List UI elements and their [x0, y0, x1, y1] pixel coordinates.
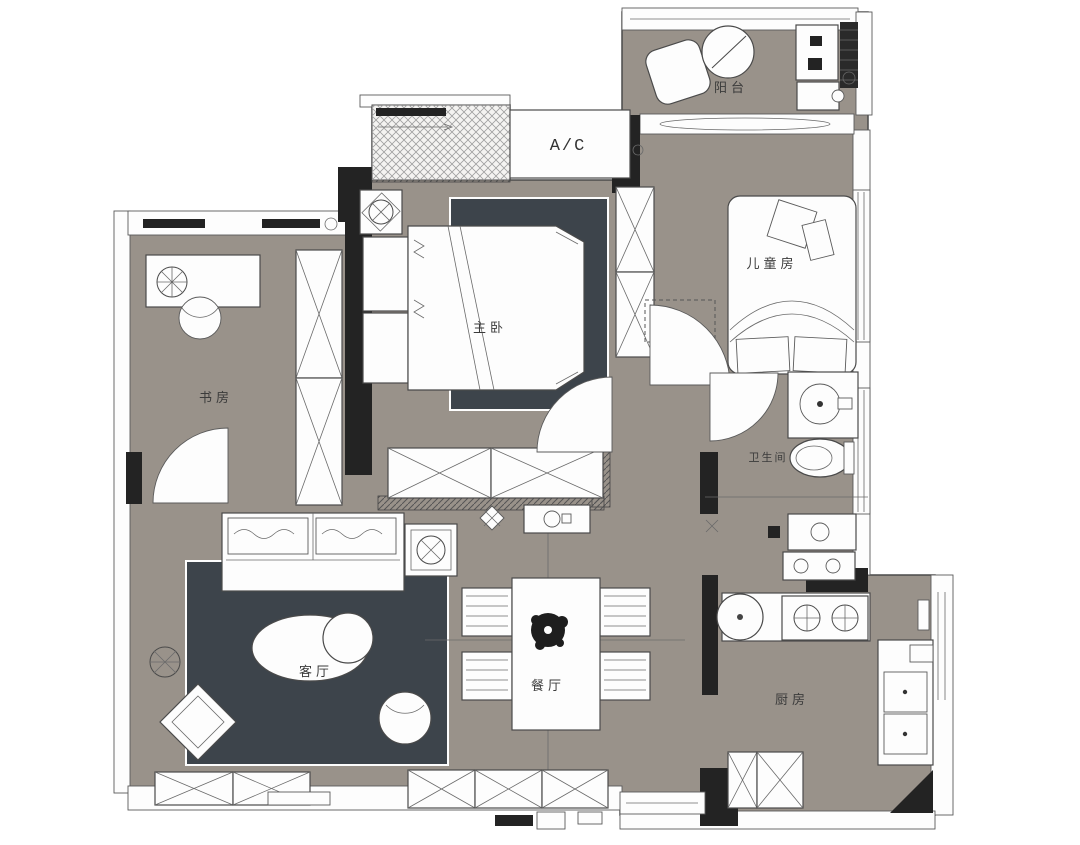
dining-chair	[600, 588, 650, 636]
shoe-cabinet	[408, 770, 608, 808]
floor-plan-canvas: A/C 阳台	[0, 0, 1080, 845]
master-bedroom-label: 主卧	[473, 320, 507, 335]
dining-chair	[462, 588, 512, 636]
console-table	[524, 505, 590, 533]
balcony-table	[702, 26, 754, 78]
floor-plan-svg: A/C 阳台	[0, 0, 1080, 845]
sofa	[222, 513, 404, 591]
study-label: 书房	[199, 390, 233, 405]
entry-fixture	[537, 812, 565, 829]
desk-plant	[157, 267, 187, 297]
dining-chair	[462, 652, 512, 700]
side-table	[405, 524, 457, 576]
dining-room-label: 餐厅	[531, 678, 565, 693]
washer-knob	[832, 90, 844, 102]
bottle-icon	[918, 600, 929, 630]
kitchen-label: 厨房	[775, 692, 809, 707]
kids-room-label: 儿童房	[746, 256, 797, 271]
kitchen-east-wall	[931, 575, 953, 815]
round-chair	[379, 692, 431, 744]
plant-stand	[360, 190, 402, 234]
balcony-label: 阳台	[714, 80, 748, 95]
nightstand	[363, 313, 408, 383]
tv-cabinet	[155, 772, 330, 805]
kitchen-sink-round	[717, 594, 763, 640]
study-window-sash	[262, 219, 320, 228]
balcony-rail	[376, 108, 446, 116]
entry-fixture	[578, 812, 602, 824]
master-bed	[408, 226, 584, 390]
fridge	[728, 752, 803, 808]
master-wardrobe	[388, 448, 603, 498]
kids-wardrobe	[616, 187, 654, 357]
toilet	[790, 439, 854, 477]
kids-bed	[728, 196, 856, 374]
study-chair	[179, 297, 221, 339]
balcony-east-wall	[856, 12, 872, 115]
study-wardrobe	[296, 250, 342, 505]
dining-table	[512, 578, 600, 730]
doormat	[495, 815, 533, 826]
ottoman	[323, 613, 373, 663]
ac-platform: A/C	[510, 110, 643, 178]
bathroom-label: 卫生间	[749, 450, 788, 464]
stove	[782, 596, 868, 640]
ac-label: A/C	[550, 137, 587, 156]
dining-chair	[600, 652, 650, 700]
kids-room-top-wall	[640, 114, 854, 134]
nightstand	[363, 237, 408, 311]
kids-room: 儿童房	[616, 187, 856, 385]
soap-dish-icon	[910, 645, 933, 662]
table-centerpiece	[531, 613, 568, 650]
study-window-sash	[143, 219, 205, 228]
living-room-label: 客厅	[299, 664, 333, 679]
master-balcony	[372, 105, 510, 180]
bathroom-sink	[788, 372, 858, 438]
